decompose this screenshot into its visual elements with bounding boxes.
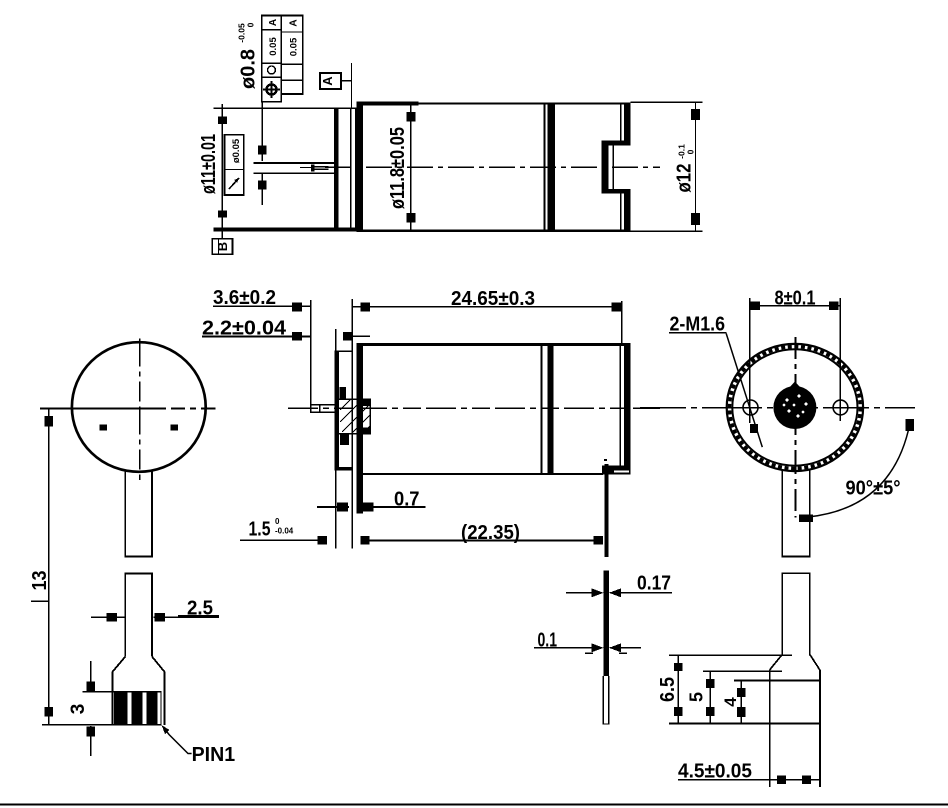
svg-text:ø0.05: ø0.05: [231, 138, 242, 163]
svg-text:ø11±0.01: ø11±0.01: [198, 134, 220, 194]
svg-text:0.17: 0.17: [637, 572, 671, 594]
svg-text:0.05: 0.05: [289, 37, 300, 56]
svg-text:2.5: 2.5: [187, 598, 213, 620]
svg-text:90°±5°: 90°±5°: [846, 477, 901, 499]
svg-text:-0.1: -0.1: [677, 144, 687, 159]
svg-text:PIN1: PIN1: [192, 744, 236, 766]
svg-text:24.65±0.3: 24.65±0.3: [451, 288, 535, 310]
svg-text:-0.04: -0.04: [275, 527, 294, 536]
svg-text:0.7: 0.7: [394, 488, 420, 510]
svg-text:A: A: [320, 76, 335, 86]
svg-text:13: 13: [29, 571, 51, 591]
svg-text:ø12: ø12: [674, 164, 696, 193]
svg-text:A: A: [289, 19, 300, 26]
svg-text:6.5: 6.5: [657, 677, 679, 702]
svg-text:B: B: [215, 242, 230, 251]
svg-text:4.5±0.05: 4.5±0.05: [678, 761, 752, 783]
svg-text:ø11.8±0.05: ø11.8±0.05: [387, 127, 409, 209]
svg-text:0.05: 0.05: [268, 37, 279, 56]
svg-text:ø0.8: ø0.8: [238, 49, 260, 89]
svg-text:0: 0: [686, 149, 696, 154]
svg-text:0: 0: [275, 517, 280, 526]
svg-text:0: 0: [246, 22, 256, 27]
svg-text:A: A: [268, 19, 279, 26]
svg-text:(22.35): (22.35): [461, 522, 520, 544]
svg-text:3: 3: [68, 704, 89, 715]
svg-text:-0.05: -0.05: [237, 23, 247, 43]
svg-text:5: 5: [687, 692, 707, 702]
svg-text:1.5: 1.5: [249, 518, 271, 540]
svg-text:8±0.1: 8±0.1: [775, 287, 816, 309]
svg-text:4: 4: [721, 697, 740, 707]
